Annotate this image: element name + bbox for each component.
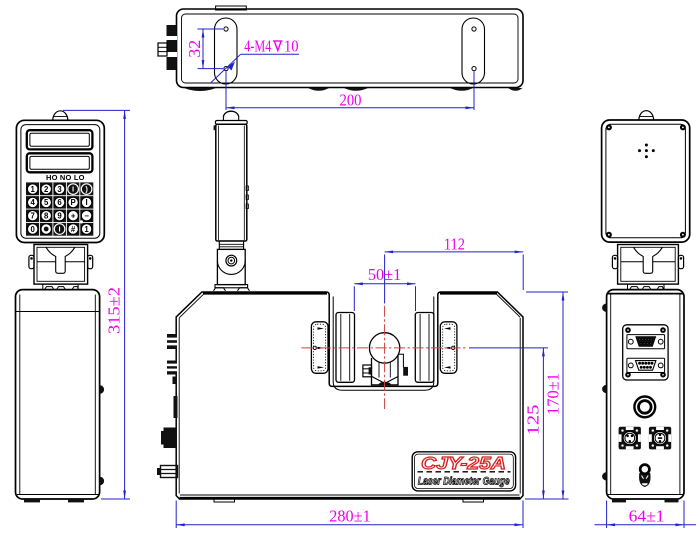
svg-text:CJY-25A: CJY-25A <box>421 453 506 473</box>
svg-text:10: 10 <box>284 37 299 56</box>
svg-text:3: 3 <box>57 185 62 194</box>
svg-text:5: 5 <box>44 198 49 207</box>
svg-text:2: 2 <box>44 185 49 194</box>
svg-text:64±1: 64±1 <box>629 507 665 526</box>
svg-text:4-M4: 4-M4 <box>244 37 271 56</box>
svg-text:−: − <box>84 212 89 221</box>
svg-text:I: I <box>72 185 74 194</box>
svg-text:P: P <box>70 198 75 207</box>
svg-text:7: 7 <box>31 212 35 221</box>
svg-text:I: I <box>86 198 88 207</box>
svg-text:#: # <box>71 225 76 234</box>
svg-text:112: 112 <box>444 235 465 254</box>
svg-text:6: 6 <box>57 198 62 207</box>
svg-text:+: + <box>71 212 76 221</box>
svg-text:I: I <box>59 225 61 234</box>
svg-text:32: 32 <box>185 40 204 58</box>
svg-text:HO NO LO: HO NO LO <box>46 173 85 182</box>
svg-text:8: 8 <box>44 212 49 221</box>
svg-text:0: 0 <box>31 225 36 234</box>
svg-text:9: 9 <box>57 212 62 221</box>
svg-text:280±1: 280±1 <box>329 507 370 526</box>
svg-text:1: 1 <box>31 185 36 194</box>
svg-text:4: 4 <box>31 198 36 207</box>
svg-text:125: 125 <box>524 405 543 436</box>
svg-text:315±2: 315±2 <box>105 287 124 334</box>
svg-text:170±1: 170±1 <box>544 373 563 415</box>
svg-text:Laser Diameter Gauge: Laser Diameter Gauge <box>418 476 510 488</box>
svg-text:50±1: 50±1 <box>368 265 401 284</box>
svg-text:200: 200 <box>340 91 362 110</box>
svg-text:1: 1 <box>84 225 89 234</box>
